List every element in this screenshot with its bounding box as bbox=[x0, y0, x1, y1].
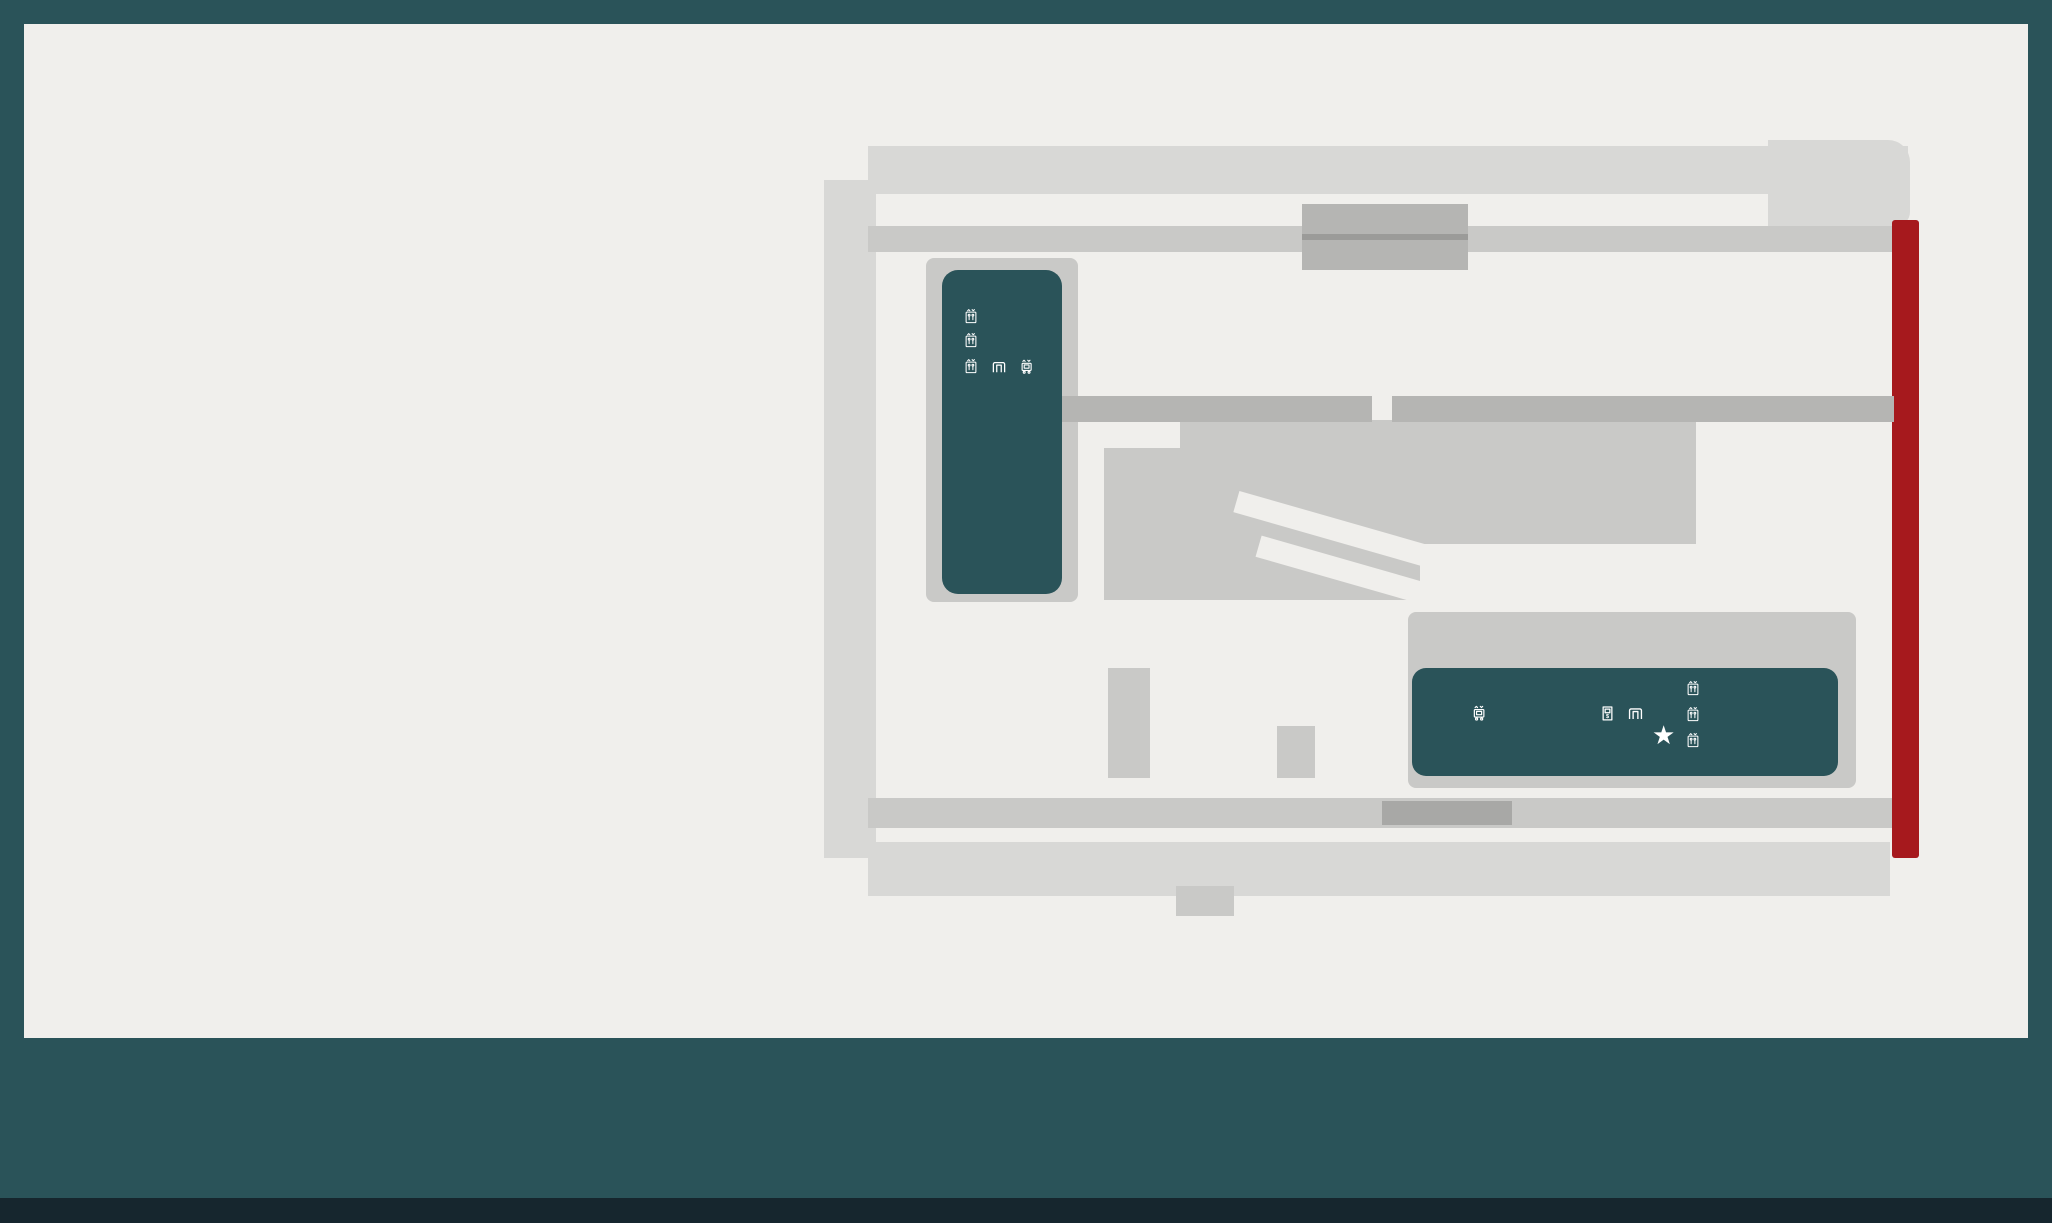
ramp-band-up-p3-top bbox=[1302, 240, 1468, 270]
freight-elevator-icon bbox=[1470, 704, 1489, 723]
you-are-here-star-icon: ★ bbox=[1652, 722, 1675, 748]
road bbox=[1108, 668, 1150, 778]
elevator-icon bbox=[962, 332, 980, 350]
elevator-icon bbox=[1684, 680, 1702, 698]
road bbox=[1176, 886, 1234, 916]
elevator-icon bbox=[1684, 732, 1702, 750]
bottom-dark-strip bbox=[0, 1198, 2052, 1223]
road bbox=[1277, 726, 1315, 778]
elevator-lobby-icon bbox=[990, 358, 1008, 376]
elevator-icon bbox=[962, 358, 980, 376]
parking-map: ★ bbox=[0, 0, 2004, 1014]
ramp-band-up-p3-mid bbox=[1392, 396, 1894, 422]
traffic-flow-band bbox=[1382, 801, 1512, 825]
elevator-icon bbox=[1684, 706, 1702, 724]
road bbox=[824, 180, 876, 858]
freight-elevator-icon bbox=[1018, 358, 1036, 376]
ramp-road-red bbox=[1892, 220, 1919, 858]
pay-station-icon bbox=[1598, 704, 1617, 723]
road bbox=[1768, 140, 1910, 226]
road bbox=[868, 842, 1890, 896]
east-core-block: ★ bbox=[1412, 668, 1838, 776]
elevator-icon bbox=[962, 308, 980, 326]
road bbox=[868, 146, 1908, 194]
ramp-band-down-p5-top bbox=[1302, 204, 1468, 234]
elevator-lobby-icon bbox=[1626, 704, 1645, 723]
road bbox=[868, 798, 1894, 828]
west-core-block bbox=[942, 270, 1062, 594]
ramp-band-down-p5-mid bbox=[1060, 396, 1372, 422]
parking-map-page: ★ bbox=[0, 0, 2052, 1223]
